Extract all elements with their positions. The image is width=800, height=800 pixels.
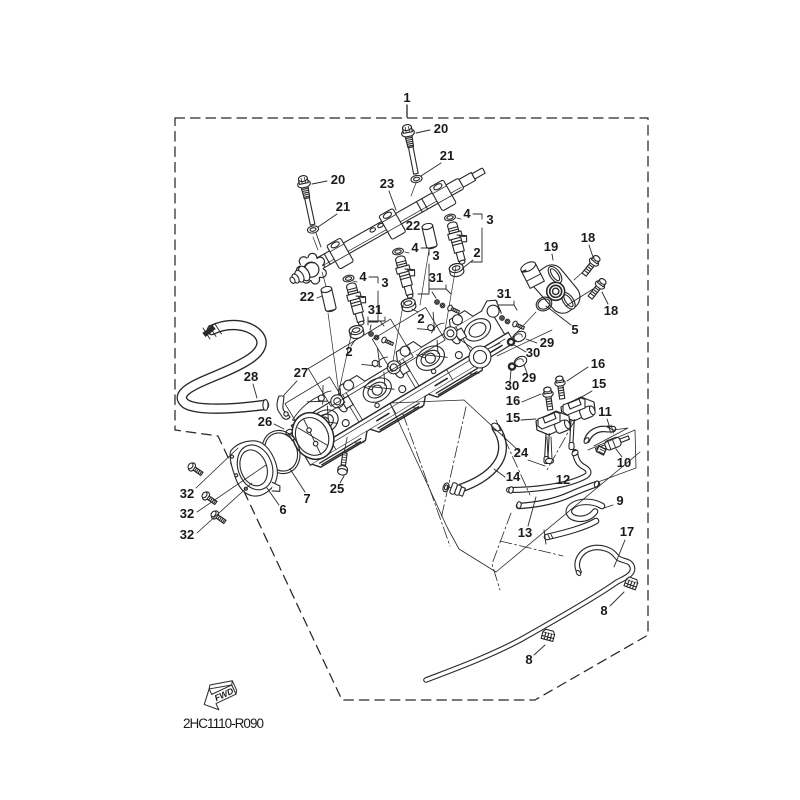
svg-text:2: 2: [417, 311, 424, 326]
svg-text:7: 7: [303, 491, 310, 506]
svg-text:14: 14: [506, 469, 521, 484]
svg-text:15: 15: [592, 376, 606, 391]
svg-text:20: 20: [434, 121, 448, 136]
svg-text:32: 32: [180, 486, 194, 501]
svg-text:22: 22: [406, 218, 420, 233]
svg-text:30: 30: [526, 345, 540, 360]
svg-text:31: 31: [497, 286, 511, 301]
svg-text:16: 16: [506, 393, 520, 408]
svg-text:25: 25: [330, 481, 344, 496]
svg-text:12: 12: [556, 472, 570, 487]
svg-text:2HC1110-R090: 2HC1110-R090: [183, 716, 264, 731]
svg-text:13: 13: [518, 525, 532, 540]
svg-text:15: 15: [506, 410, 520, 425]
svg-text:21: 21: [336, 199, 350, 214]
svg-text:17: 17: [620, 524, 634, 539]
svg-text:22: 22: [300, 289, 314, 304]
svg-text:32: 32: [180, 506, 194, 521]
svg-text:32: 32: [180, 527, 194, 542]
svg-text:31: 31: [368, 302, 382, 317]
svg-text:29: 29: [540, 335, 554, 350]
svg-text:27: 27: [294, 365, 308, 380]
svg-text:3: 3: [432, 248, 439, 263]
svg-text:26: 26: [258, 414, 272, 429]
svg-text:6: 6: [279, 502, 286, 517]
svg-text:10: 10: [617, 455, 631, 470]
svg-text:24: 24: [514, 445, 529, 460]
svg-text:2: 2: [473, 245, 480, 260]
svg-text:11: 11: [598, 404, 612, 419]
svg-text:31: 31: [429, 270, 443, 285]
svg-text:18: 18: [581, 230, 595, 245]
svg-text:16: 16: [591, 356, 605, 371]
svg-text:28: 28: [244, 369, 258, 384]
svg-text:5: 5: [571, 322, 578, 337]
svg-text:4: 4: [463, 206, 471, 221]
svg-text:29: 29: [522, 370, 536, 385]
svg-text:18: 18: [604, 303, 618, 318]
svg-text:30: 30: [505, 378, 519, 393]
svg-text:3: 3: [381, 275, 388, 290]
svg-text:21: 21: [440, 148, 454, 163]
svg-text:19: 19: [544, 239, 558, 254]
svg-text:23: 23: [380, 176, 394, 191]
svg-text:4: 4: [359, 269, 367, 284]
svg-text:20: 20: [331, 172, 345, 187]
svg-text:1: 1: [403, 90, 410, 105]
svg-text:4: 4: [411, 240, 419, 255]
svg-text:8: 8: [600, 603, 607, 618]
svg-text:8: 8: [525, 652, 532, 667]
svg-text:3: 3: [486, 212, 493, 227]
svg-text:9: 9: [616, 493, 623, 508]
